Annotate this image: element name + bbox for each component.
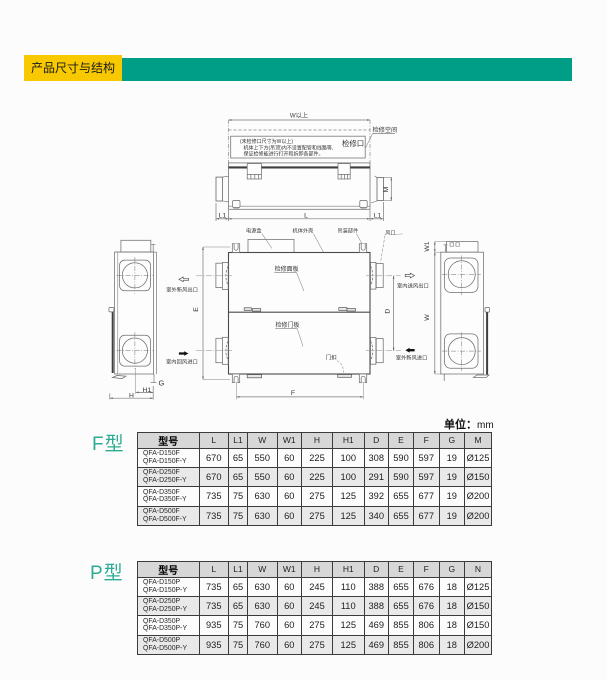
svg-text:室外新风进口: 室外新风进口 (396, 354, 428, 362)
svg-text:M: M (383, 187, 390, 193)
svg-text:保证检修能进行打开和拆卸各部件。: 保证检修能进行打开和拆卸各部件。 (244, 151, 324, 158)
svg-text:室内送风出口: 室内送风出口 (397, 282, 429, 290)
svg-text:W: W (424, 314, 431, 321)
svg-text:门扣: 门扣 (326, 354, 338, 362)
svg-text:机体外壳: 机体外壳 (293, 226, 314, 234)
svg-text:H: H (129, 393, 134, 400)
svg-text:L1: L1 (374, 212, 382, 219)
svg-text:H1: H1 (142, 387, 151, 394)
svg-text:检修门板: 检修门板 (276, 321, 300, 329)
svg-text:(未检修口尺寸为W以上): (未检修口尺寸为W以上) (240, 138, 293, 145)
svg-text:室内回风进口: 室内回风进口 (166, 357, 198, 365)
svg-text:E: E (193, 307, 200, 312)
svg-text:电源盒: 电源盒 (246, 227, 262, 235)
svg-text:D: D (384, 309, 391, 314)
svg-text:F: F (291, 390, 295, 397)
svg-text:机体上下方(吊顶)内不设置配管和线路等,: 机体上下方(吊顶)内不设置配管和线路等, (244, 144, 334, 151)
svg-text:吊装部件: 吊装部件 (337, 226, 358, 234)
svg-text:室外新风出口: 室外新风出口 (166, 285, 198, 293)
svg-text:W1: W1 (424, 241, 431, 251)
svg-text:风口: 风口 (385, 229, 395, 236)
svg-text:检修空间: 检修空间 (373, 126, 398, 134)
svg-text:检修面板: 检修面板 (275, 265, 299, 273)
svg-text:G: G (159, 379, 165, 388)
svg-text:W以上: W以上 (290, 112, 308, 120)
svg-text:L1: L1 (219, 212, 227, 219)
svg-text:L: L (304, 212, 308, 219)
svg-text:检修口: 检修口 (342, 139, 364, 148)
